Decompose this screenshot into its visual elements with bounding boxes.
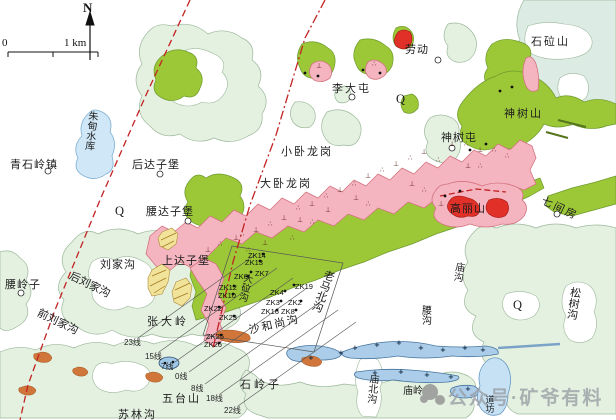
sill-plus-symbol: + (308, 354, 314, 362)
volcanic-symbol: ∴ (372, 60, 377, 68)
drill-dot (218, 306, 221, 309)
sill-plus-symbol: + (374, 341, 380, 349)
drill-dot (379, 72, 382, 75)
volcanic-symbol: ∴ (310, 218, 315, 226)
volcanic-symbol: ⊥ (205, 246, 211, 254)
volcanic-symbol: ⊥ (409, 180, 415, 188)
sill-plus-symbol: + (465, 385, 471, 393)
drill-dot (218, 342, 221, 345)
exploration-line (238, 322, 356, 406)
volcanic-symbol: ∴ (380, 166, 385, 174)
volcanic-symbol: ⊥ (393, 160, 399, 168)
volcanic-symbol: ⊥ (325, 206, 331, 214)
sill-plus-symbol: + (372, 369, 378, 377)
geological-map: ⊥⊥⊥⊥⊥⊥⊥⊥⊥⊥⊥⊥⊥⊥⊥⊥⊥⊥⊥∴∴∴∴∴∴∴∴∴∴∴∴∴∴∴∴∴∴∴∴∴… (0, 0, 616, 420)
drill-dot (511, 86, 514, 89)
volcanic-symbol: ∴ (478, 162, 483, 170)
drill-dot (232, 293, 235, 296)
volcanic-symbol: ∴ (455, 204, 460, 212)
drill-dot (499, 90, 502, 93)
drill-dot (250, 271, 253, 274)
drill-dot (295, 309, 298, 312)
exploration-line (220, 310, 338, 394)
volcanic-symbol: ⊥ (438, 200, 444, 208)
volcanic-symbol: ∴ (246, 246, 251, 254)
sill-plus-symbol: + (396, 339, 402, 347)
symbols-layer: ⊥⊥⊥⊥⊥⊥⊥⊥⊥⊥⊥⊥⊥⊥⊥⊥⊥⊥⊥∴∴∴∴∴∴∴∴∴∴∴∴∴∴∴∴∴∴∴∴∴… (0, 0, 616, 420)
volcanic-symbol: ⊥ (353, 194, 359, 202)
sill-plus-symbol: + (398, 368, 404, 376)
drill-dot (280, 300, 283, 303)
village-marker (157, 171, 163, 177)
drill-dot (469, 149, 472, 152)
volcanic-symbol: ∴ (436, 156, 441, 164)
drill-dot (259, 260, 262, 263)
drill-dot (293, 284, 296, 287)
village-marker (554, 211, 560, 217)
village-marker (435, 57, 441, 63)
drill-dot (300, 300, 303, 303)
drill-dot (247, 275, 250, 278)
drill-dot (485, 143, 488, 146)
village-marker (185, 218, 191, 224)
volcanic-symbol: ⊥ (477, 146, 483, 154)
volcanic-symbol: ⊥ (365, 172, 371, 180)
volcanic-symbol: ⊥ (316, 62, 322, 70)
volcanic-symbol: ∴ (290, 234, 295, 242)
sill-plus-symbol: + (480, 346, 486, 354)
volcanic-symbol: ⊥ (309, 200, 315, 208)
volcanic-symbol: ∴ (268, 220, 273, 228)
sill-plus-symbol: + (440, 346, 446, 354)
volcanic-symbol: ∴ (240, 230, 245, 238)
volcanic-symbol: ∴ (296, 204, 301, 212)
drill-dot (262, 253, 265, 256)
drill-dot (233, 285, 236, 288)
village-marker (349, 94, 355, 100)
volcanic-symbol: ⊥ (233, 234, 239, 242)
exploration-line (189, 288, 307, 372)
sill-plus-symbol: + (462, 344, 468, 352)
volcanic-symbol: ⊥ (421, 148, 427, 156)
volcanic-symbol: ∴ (492, 146, 497, 154)
volcanic-symbol: ⊥ (281, 214, 287, 222)
volcanic-symbol: ∴ (324, 192, 329, 200)
volcanic-symbol: ∴ (198, 256, 203, 264)
sill-plus-symbol: + (418, 344, 424, 352)
volcanic-symbol: ⊥ (297, 216, 303, 224)
volcanic-symbol: ⊥ (449, 140, 455, 148)
drill-dot (276, 309, 279, 312)
drill-dot (317, 75, 320, 78)
drill-dot (233, 315, 236, 318)
volcanic-symbol: ∴ (218, 240, 223, 248)
drill-dot (459, 190, 462, 193)
sill-plus-symbol: + (352, 344, 358, 352)
drill-dot (304, 72, 307, 75)
volcanic-symbol: ∴ (366, 200, 371, 208)
volcanic-symbol: ∴ (422, 186, 427, 194)
sill-plus-symbol: + (338, 349, 344, 357)
exploration-line (138, 254, 256, 338)
volcanic-symbol: ⊥ (253, 226, 259, 234)
volcanic-symbol: ⊥ (262, 239, 268, 247)
exploration-line (175, 278, 293, 362)
village-marker (18, 290, 24, 296)
village-marker (45, 168, 51, 174)
exploration-line (205, 300, 323, 384)
sill-plus-symbol: + (448, 373, 454, 381)
drill-dot (362, 69, 365, 72)
volcanic-symbol: ∴ (352, 180, 357, 188)
exploration-line (159, 268, 277, 352)
volcanic-symbol: ∴ (464, 140, 469, 148)
volcanic-symbol: ∴ (408, 154, 413, 162)
drill-dot (284, 290, 287, 293)
drill-dot (444, 195, 447, 198)
volcanic-symbol: ⊥ (337, 186, 343, 194)
drill-dot (220, 334, 223, 337)
volcanic-symbol: ∴ (505, 152, 510, 160)
volcanic-symbol: ⊥ (465, 162, 471, 170)
sill-plus-symbol: + (424, 371, 430, 379)
